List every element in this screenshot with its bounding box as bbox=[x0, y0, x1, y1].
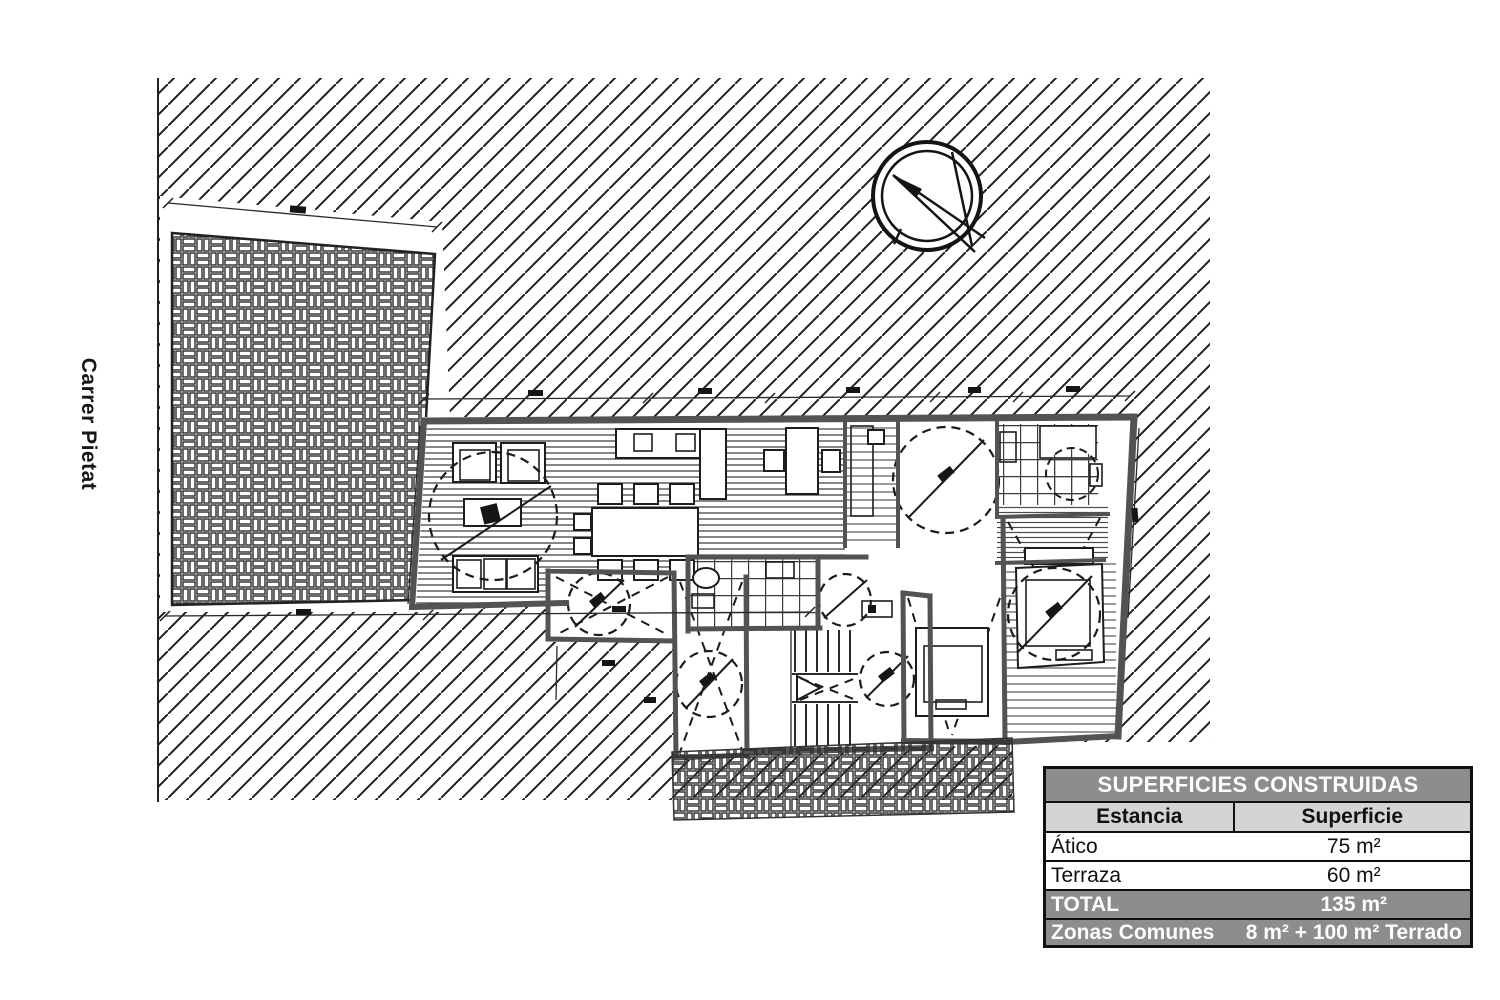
row-value: 135 m² bbox=[1238, 891, 1470, 918]
desk-chair bbox=[822, 450, 840, 472]
row-value: 8 m² + 100 m² Terrado bbox=[1238, 920, 1470, 945]
terrace-paving bbox=[172, 233, 435, 605]
desk bbox=[786, 428, 818, 494]
dining-chair bbox=[670, 484, 694, 504]
row-label: TOTAL bbox=[1046, 891, 1238, 918]
areas-table-title: SUPERFICIES CONSTRUIDAS bbox=[1046, 769, 1470, 803]
row-value: 60 m² bbox=[1238, 862, 1470, 889]
scanned-plan-page: Carrer Pietat SUPERFICIES CONSTRUIDAS Es… bbox=[0, 0, 1500, 1000]
row-label: Ático bbox=[1046, 833, 1238, 860]
areas-table: SUPERFICIES CONSTRUIDAS Estancia Superfi… bbox=[1043, 766, 1473, 948]
desk-chair bbox=[764, 450, 784, 471]
toilet bbox=[693, 568, 719, 588]
dining-chair bbox=[598, 484, 622, 504]
dimension-label-mark bbox=[528, 390, 543, 396]
dining-table bbox=[592, 508, 698, 556]
brick-paving-strip bbox=[672, 738, 1014, 820]
row-label: Zonas Comunes bbox=[1046, 920, 1238, 945]
dining-chair bbox=[574, 514, 591, 530]
table-row-common-areas: Zonas Comunes 8 m² + 100 m² Terrado bbox=[1046, 920, 1470, 945]
table-row-total: TOTAL 135 m² bbox=[1046, 891, 1470, 920]
row-label: Terraza bbox=[1046, 862, 1238, 889]
dining-chair bbox=[574, 538, 591, 554]
row-value: 75 m² bbox=[1238, 833, 1470, 860]
street-name-label: Carrer Pietat bbox=[72, 349, 100, 499]
table-row: Ático 75 m² bbox=[1046, 833, 1470, 862]
areas-table-column-header-row: Estancia Superficie bbox=[1046, 803, 1470, 833]
table-row: Terraza 60 m² bbox=[1046, 862, 1470, 891]
dining-chair bbox=[634, 484, 658, 504]
column-header-superficie: Superficie bbox=[1235, 803, 1470, 831]
wardrobe bbox=[700, 429, 726, 499]
column-header-estancia: Estancia bbox=[1046, 803, 1235, 831]
